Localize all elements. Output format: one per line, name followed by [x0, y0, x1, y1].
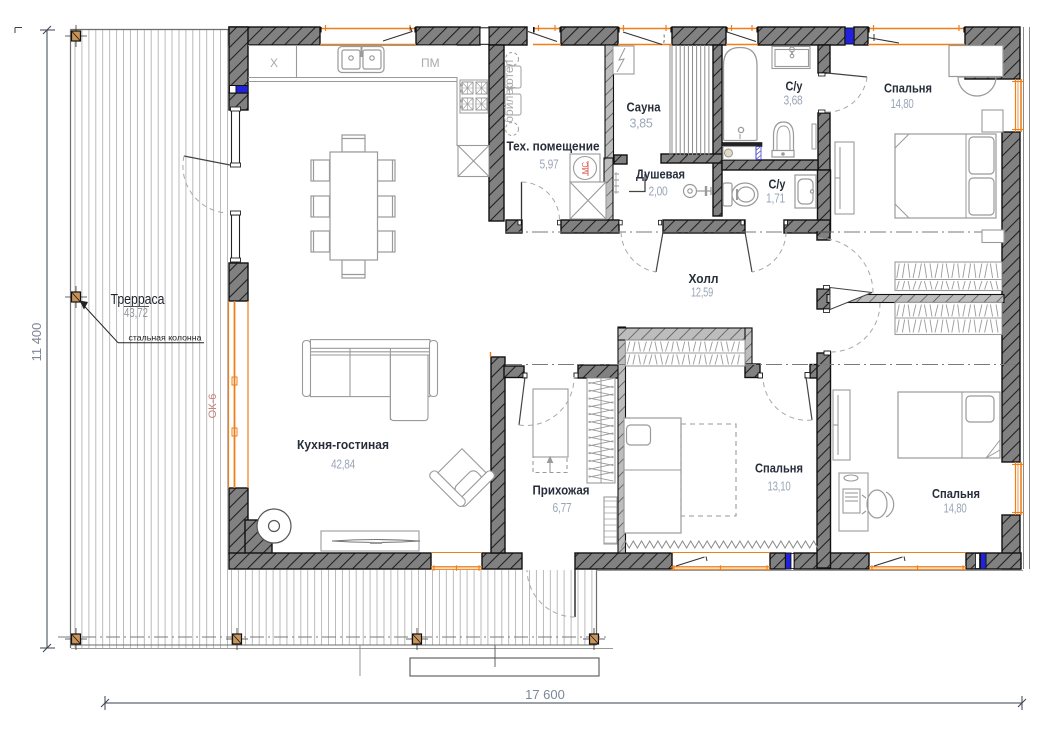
svg-text:Спальня: Спальня [932, 486, 980, 501]
svg-text:11 400: 11 400 [29, 323, 44, 362]
svg-text:Душевая: Душевая [636, 167, 685, 182]
svg-text:42,84: 42,84 [331, 457, 355, 472]
svg-text:Кухня-гостиная: Кухня-гостиная [297, 437, 389, 452]
svg-text:2,00: 2,00 [649, 184, 668, 199]
svg-text:17 600: 17 600 [525, 687, 565, 702]
svg-text:12,59: 12,59 [691, 285, 713, 300]
svg-text:МС: МС [581, 162, 590, 175]
svg-text:13,10: 13,10 [768, 479, 791, 494]
svg-text:1,71: 1,71 [766, 191, 785, 206]
svg-text:3,68: 3,68 [784, 93, 803, 108]
svg-text:3,85: 3,85 [630, 116, 653, 131]
svg-text:ОК-6: ОК-6 [207, 394, 219, 419]
svg-text:Сауна: Сауна [627, 100, 662, 115]
svg-text:6,77: 6,77 [553, 500, 572, 515]
svg-text:5,97: 5,97 [540, 157, 559, 172]
svg-text:С/у: С/у [769, 177, 787, 192]
svg-text:14,80: 14,80 [891, 96, 914, 111]
svg-text:Тех. помещение: Тех. помещение [507, 139, 600, 154]
svg-text:43,72: 43,72 [124, 305, 148, 320]
svg-text:Спальня: Спальня [755, 461, 803, 476]
svg-text:Спальня: Спальня [884, 81, 932, 96]
svg-text:С/у: С/у [786, 79, 804, 94]
svg-text:X: X [270, 56, 278, 70]
svg-text:бойлер: бойлер [502, 82, 516, 123]
svg-text:Прихожая: Прихожая [533, 483, 590, 498]
svg-text:стальная колонна: стальная колонна [129, 333, 202, 343]
svg-text:14,80: 14,80 [944, 501, 967, 516]
svg-text:ПМ: ПМ [421, 56, 440, 70]
